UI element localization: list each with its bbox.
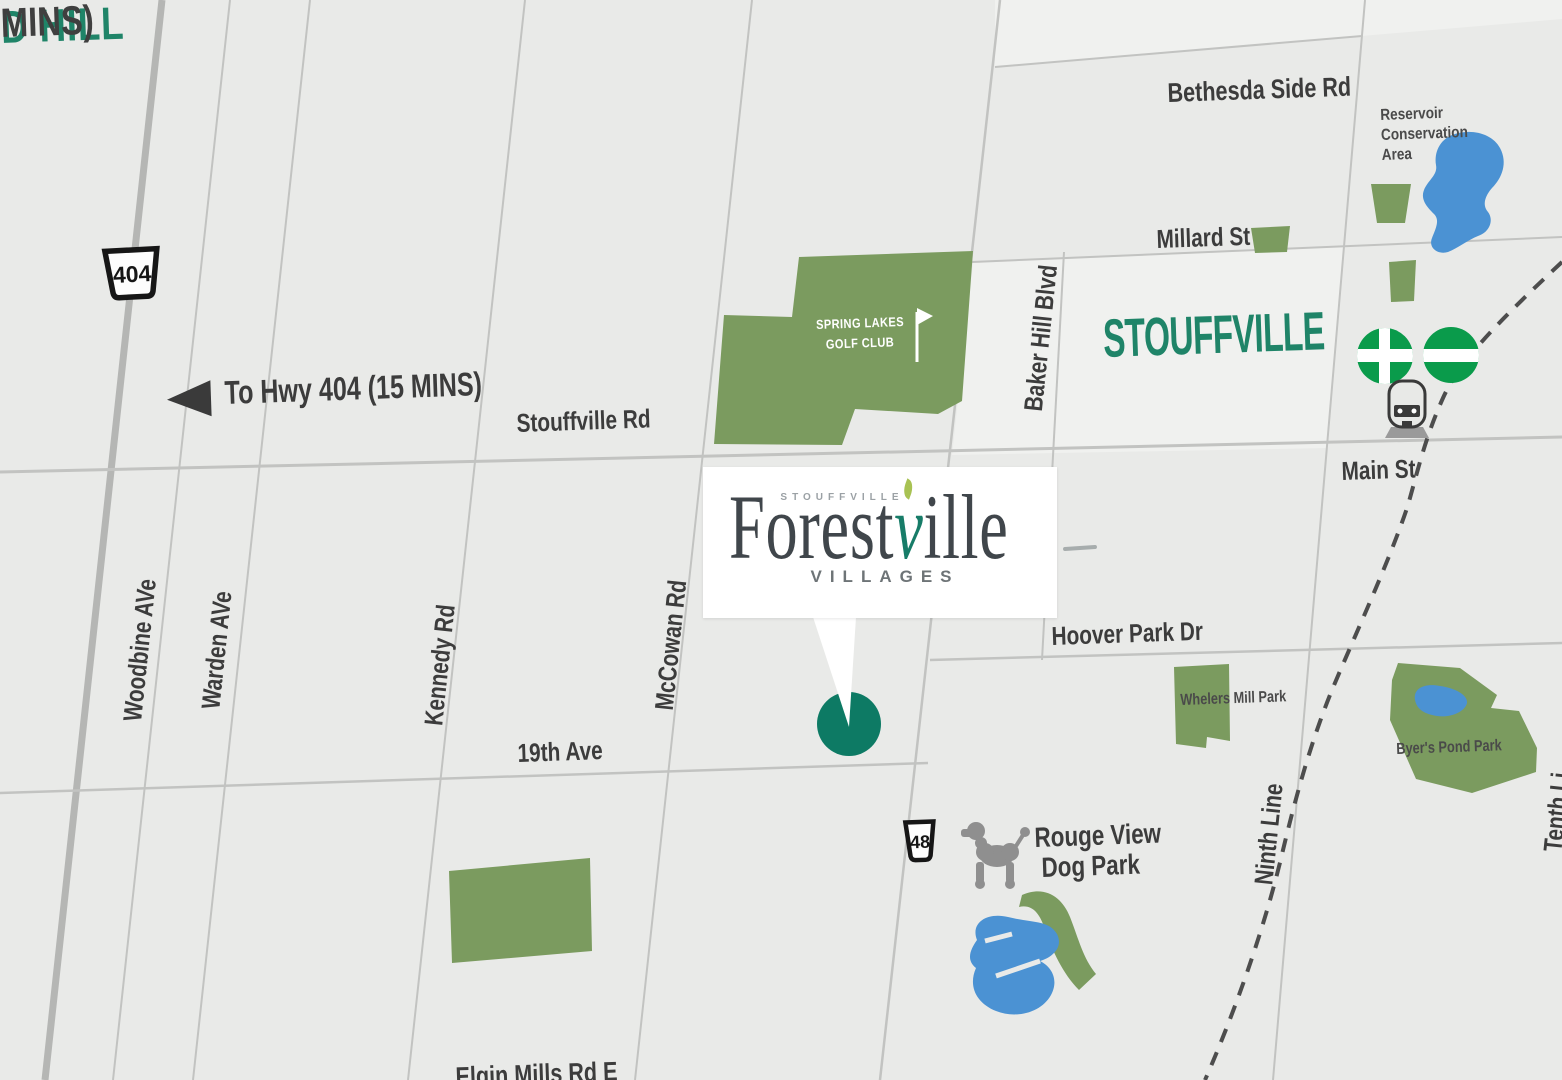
train-icon	[1385, 381, 1429, 438]
byers-pond-park-area	[1390, 663, 1537, 793]
road-19th-ave	[0, 763, 928, 793]
location-marker	[813, 617, 881, 756]
logo-tagline: VILLAGES	[810, 567, 959, 587]
road-label-main-st: Main St	[1341, 453, 1416, 487]
forestville-card: STOUFFVILLE Forestville VILLAGES	[703, 467, 1057, 618]
road-label-stouffville-rd: Stouffville Rd	[516, 403, 651, 439]
reservoir-green	[1371, 184, 1411, 223]
logo-name-post: ille	[923, 476, 1008, 578]
logo-wordmark: Forestville	[729, 481, 1009, 573]
road-label-bethesda-side-rd: Bethesda Side Rd	[1167, 72, 1352, 109]
dog-icon	[961, 822, 1030, 889]
label-whelers-mill-park: Whelers Mill Park	[1180, 688, 1287, 710]
road-label-19th-ave: 19th Ave	[517, 735, 603, 769]
map-canvas: 404 48 D HILL MINS) To Hwy 404 (15 MINS)…	[0, 0, 1562, 1080]
label-reservoir-conservation-area: Reservoir Conservation Area	[1380, 103, 1469, 166]
label-dog-park: Dog Park	[1041, 849, 1140, 884]
leaf-v-icon: v	[894, 476, 923, 578]
label-rouge-view: Rouge View	[1034, 818, 1162, 854]
svg-text:404: 404	[112, 260, 152, 288]
hwy-48-shield: 48	[905, 822, 934, 861]
left-arrow-icon	[166, 380, 211, 418]
logo-name-pre: Forest	[729, 476, 894, 578]
road-woodbine-ave	[113, 0, 230, 1080]
label-spring-lakes: SPRING LAKES	[816, 314, 904, 332]
road-label-hoover-park-dr: Hoover Park Dr	[1051, 616, 1203, 652]
hwy-404-shield: 404	[105, 249, 159, 299]
road-warden-ave	[193, 0, 310, 1080]
go-transit-logo	[1352, 326, 1484, 386]
road-hoover-park-dr	[930, 643, 1562, 660]
svg-text:48: 48	[910, 832, 931, 853]
label-reservoir-line2: Conservation	[1381, 123, 1469, 146]
label-reservoir-line3: Area	[1381, 143, 1469, 166]
rouge-park-pond	[970, 916, 1059, 1015]
millard-st-green	[1251, 226, 1290, 253]
road-hwy-404	[45, 0, 162, 1080]
green-area-southwest	[449, 858, 592, 963]
label-minutes-partial: MINS)	[0, 0, 95, 47]
road-label-millard-st: Millard St	[1156, 221, 1251, 255]
label-stouffville-city: STOUFFVILLE	[1102, 300, 1325, 370]
label-golf-club: GOLF CLUB	[826, 334, 895, 351]
green-area-near-go	[1389, 260, 1416, 302]
block-top-right	[995, 0, 1562, 67]
label-byers-pond-park: Byer's Pond Park	[1396, 737, 1502, 759]
road-ninth-line	[1273, 0, 1365, 1080]
